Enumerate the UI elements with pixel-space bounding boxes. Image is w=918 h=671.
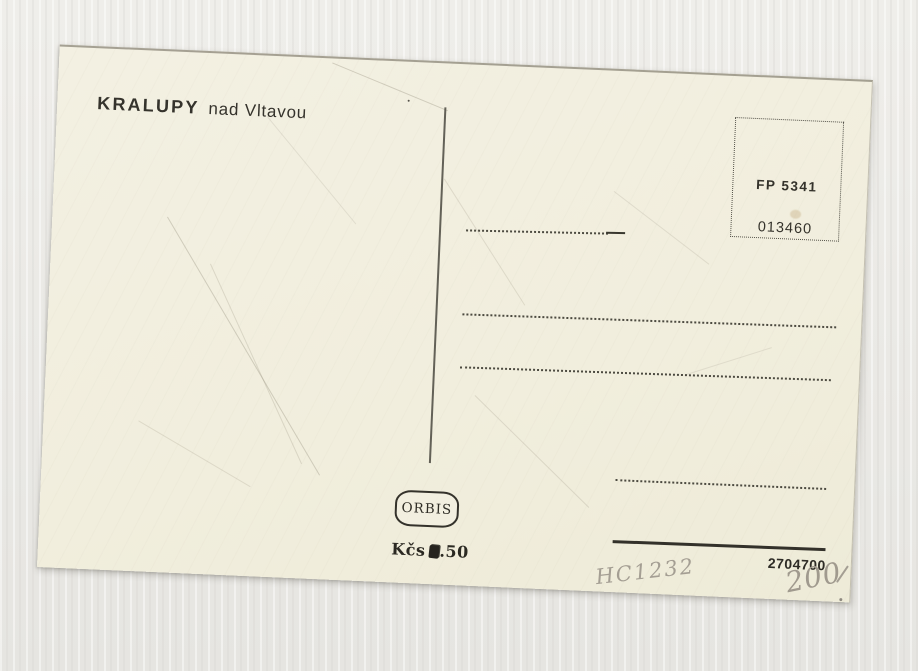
title-town-suffix: nad Vltavou — [208, 99, 307, 122]
stamp-box-serial: 013460 — [731, 218, 839, 239]
address-line-1 — [466, 229, 608, 234]
title-town-name: KRALUPY — [97, 93, 200, 117]
scratch-mark — [138, 420, 251, 487]
scratch-mark — [266, 116, 356, 225]
orbis-logo-text: ORBIS — [401, 500, 452, 518]
scratch-mark — [444, 179, 525, 306]
address-line-1-tail — [606, 232, 625, 235]
price-fraction: .50 — [439, 542, 469, 562]
postcard-back: KRALUPYnad Vltavou FP 5341 013460 ORBIS … — [37, 44, 873, 602]
address-line-5-solid — [613, 540, 826, 551]
center-divider-line — [429, 107, 446, 463]
address-line-2 — [462, 313, 836, 328]
scratch-mark — [614, 191, 710, 265]
photo-background: KRALUPYnad Vltavou FP 5341 013460 ORBIS … — [0, 0, 918, 671]
scratch-mark — [686, 347, 772, 375]
scratch-mark — [332, 62, 448, 111]
address-line-4 — [615, 479, 826, 490]
orbis-logo: ORBIS — [394, 490, 460, 529]
stamp-box-code: FP 5341 — [733, 176, 841, 196]
stamp-box: FP 5341 013460 — [730, 117, 844, 242]
scratch-mark — [475, 395, 590, 508]
address-line-3 — [460, 366, 831, 381]
pencil-code: HC1232 — [594, 554, 696, 589]
pencil-dot — [839, 598, 842, 601]
ink-speck — [408, 100, 410, 102]
postcard-title: KRALUPYnad Vltavou — [97, 93, 308, 123]
scratch-mark — [210, 264, 302, 465]
ink-blot — [429, 545, 440, 559]
price-label: Kčs.50 — [382, 539, 479, 562]
scratch-mark — [167, 217, 320, 476]
price-currency: Kčs — [391, 539, 426, 559]
